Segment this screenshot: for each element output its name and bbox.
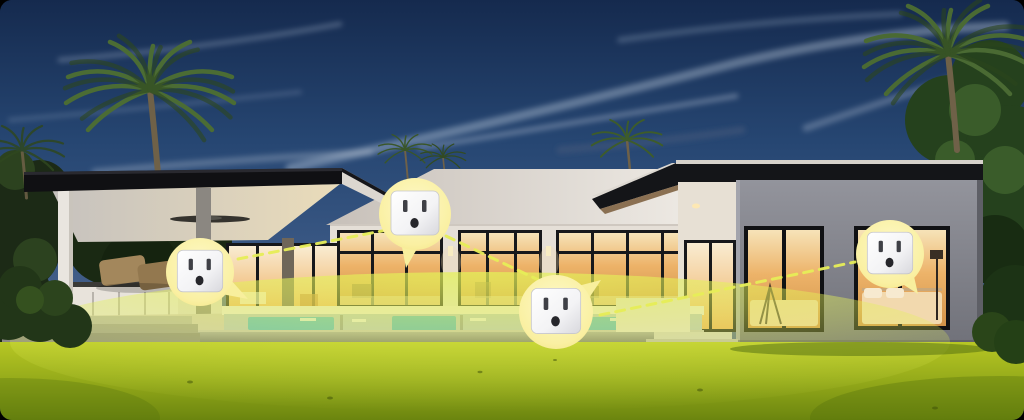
outlet-ground-hole [551,316,560,326]
smart-plug-outlet-icon [391,191,439,235]
outlet-slot [563,298,568,310]
outlet-ground-hole [886,258,894,267]
outlet-slot [207,259,211,270]
smart-plug-outlet-icon [177,250,222,292]
smart-plug-outlet-icon [531,288,580,333]
outlet-ground-hole [410,218,418,228]
outlet-slot [403,200,408,212]
outlet-slot [879,241,883,252]
promo-scene [0,0,1024,420]
outlet-slot [422,200,427,212]
outlet-slot [189,259,193,270]
outlet-ground-hole [196,276,204,285]
smart-plug-outlet-icon [867,232,912,274]
outlet-slot [544,298,549,310]
house-render [0,0,1024,420]
outlet-slot [897,241,901,252]
